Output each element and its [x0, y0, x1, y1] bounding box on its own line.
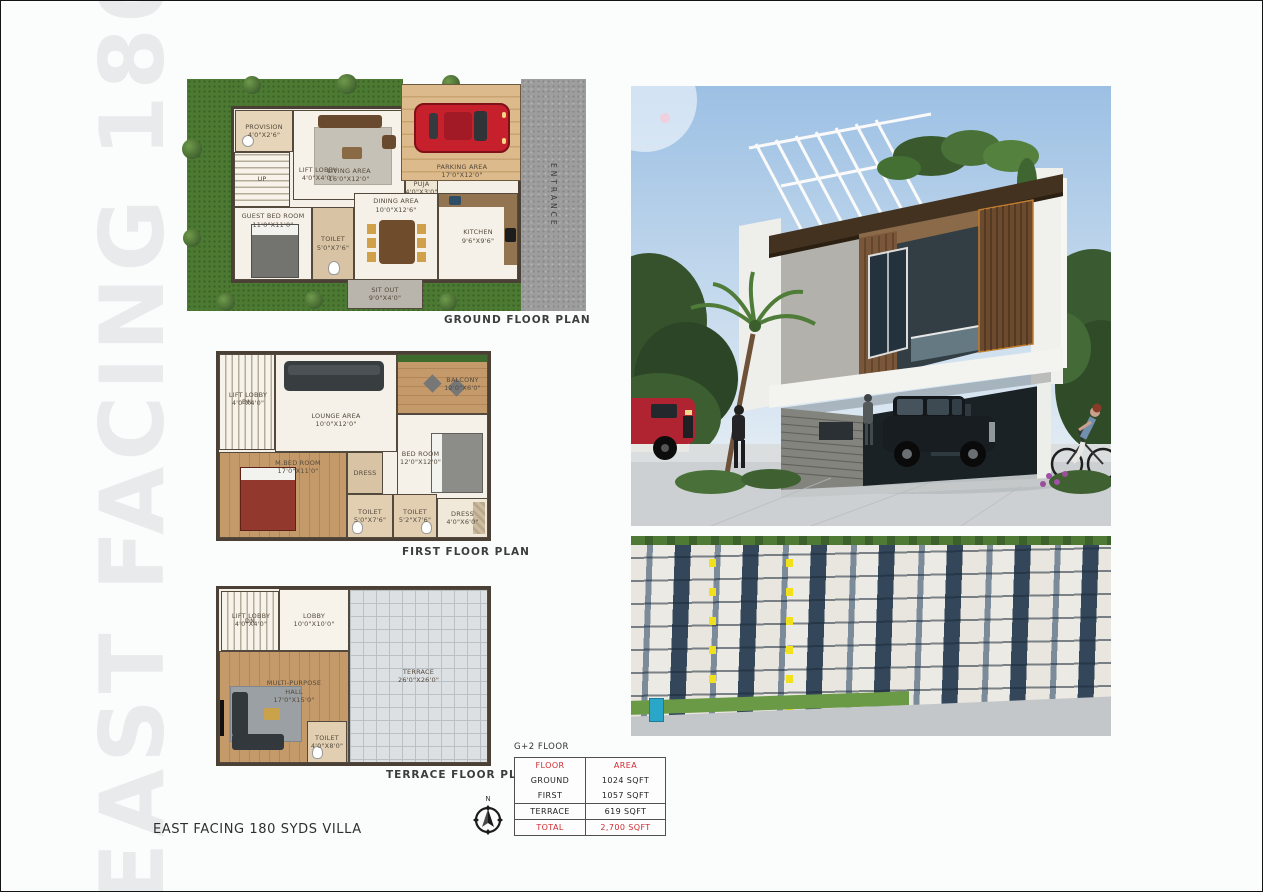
room-kitchen: KITCHEN 9'6"x9'6"	[438, 193, 518, 280]
room-label-toilet2: TOILET 5'2"x7'6"	[399, 508, 431, 525]
room-label-lift-lobby: LIFT LOBBY 4'0"x4'0"	[299, 166, 337, 183]
cell-floor: GROUND	[515, 776, 585, 785]
compass-icon: N	[469, 793, 507, 837]
chair-shape	[417, 224, 426, 234]
page-title: EAST FACING 180 SYDS VILLA	[153, 822, 362, 837]
chair-shape	[423, 374, 441, 392]
room-toilet-terrace: TOILET 4'0"x8'0"	[307, 721, 347, 763]
cell-floor: FIRST	[515, 791, 585, 800]
parking-area: PARKING AREA 17'0"x12'0"	[401, 84, 521, 181]
table-row: GROUND 1024 SQFT	[515, 773, 665, 788]
cell-area: 619 SQFT	[585, 804, 665, 819]
aerial-green-strip	[631, 536, 1111, 545]
room-dining: DINING AREA 10'0"x12'6"	[354, 193, 438, 280]
room-label-lift-lobby-first: LIFT LOBBY 4'0"x4'0"	[229, 391, 267, 408]
tv-shape	[220, 700, 224, 736]
room-label-dress2: DRESS 4'0"x6'0"	[446, 510, 478, 527]
room-toilet-ground: TOILET 5'0"x7'6"	[312, 207, 354, 280]
car-icon	[414, 103, 510, 153]
room-lounge: LOUNGE AREA 10'0"x12'0"	[275, 354, 397, 452]
tree-icon	[439, 293, 457, 311]
area-table: FLOOR AREA GROUND 1024 SQFT FIRST 1057 S…	[514, 757, 666, 836]
table-total-row: TOTAL 2,700 SQFT	[515, 819, 665, 835]
entrance-label: ENTRANCE	[549, 163, 558, 228]
room-label-kitchen: KITCHEN 9'6"x9'6"	[462, 228, 494, 245]
tree-icon	[305, 291, 323, 309]
room-bed: BED ROOM 12'0"x12'0"	[397, 414, 488, 502]
room-label-parking: PARKING AREA 17'0"x12'0"	[437, 163, 488, 180]
terrace-floor-plan: DN LIFT LOBBY 4'0"x4'0" LOBBY 10'0"x10'0…	[216, 586, 491, 766]
cell-area: 1024 SQFT	[585, 773, 665, 788]
table-header-row: FLOOR AREA	[515, 758, 665, 773]
first-plan-caption: FIRST FLOOR PLAN	[402, 546, 530, 558]
bed-shape	[240, 467, 296, 531]
aerial-villas-illustration	[631, 536, 1111, 736]
room-toilet2: TOILET 5'2"x7'6"	[393, 494, 437, 538]
table-title: G+2 FLOOR	[514, 742, 569, 752]
bed-shape	[251, 224, 299, 278]
room-lobby: LOBBY 10'0"x10'0"	[279, 589, 349, 651]
room-mbed: M.BED ROOM 17'0"x11'0"	[219, 452, 347, 538]
staircase: UP	[234, 152, 290, 207]
tree-icon	[183, 229, 201, 247]
room-label-hall: MULTI-PURPOSE HALL 17'0"x15'0"	[267, 679, 321, 704]
room-label-lobby: LOBBY 10'0"x10'0"	[293, 612, 334, 629]
tree-icon	[182, 139, 202, 159]
room-toilet1: TOILET 5'0"x7'6"	[347, 494, 393, 538]
chair-shape	[417, 238, 426, 248]
sofa-shape	[232, 734, 284, 750]
aerial-pool	[649, 698, 664, 722]
room-label-lounge: LOUNGE AREA 10'0"x12'0"	[311, 412, 360, 429]
room-label-toilet1: TOILET 5'0"x7'6"	[354, 508, 386, 525]
col-header-floor: FLOOR	[515, 761, 585, 770]
wc-shape	[328, 261, 340, 275]
cell-total-label: TOTAL	[515, 823, 585, 832]
room-label-bed: BED ROOM 12'0"x12'0"	[400, 450, 441, 467]
room-dress2: DRESS 4'0"x6'0"	[437, 498, 488, 538]
room-label-terrace: TERRACE 26'0"x26'0"	[398, 668, 439, 685]
dining-table-shape	[379, 220, 415, 264]
aerial-yellow-cars	[709, 544, 716, 712]
room-label-dress: DRESS	[354, 469, 377, 477]
sofa-shape	[232, 692, 248, 736]
room-label-mbed: M.BED ROOM 17'0"x11'0"	[275, 459, 321, 476]
room-label-dining: DINING AREA 10'0"x12'6"	[373, 197, 418, 214]
tree-icon	[217, 293, 235, 311]
chair-shape	[367, 224, 376, 234]
chair-shape	[367, 252, 376, 262]
compass-north-label: N	[485, 795, 490, 803]
tree-icon	[243, 76, 261, 94]
room-label-balcony: BALCONY 12'0"x6'0"	[444, 376, 481, 393]
room-sitout: SIT OUT 9'0"x4'0"	[347, 279, 423, 309]
stove-shape	[505, 228, 516, 242]
villa-render-illustration	[631, 86, 1111, 526]
ground-floor-plan: ENTRANCE PARKING AREA 17'0"x12'0" PROVIS…	[187, 79, 586, 311]
watermark-text: EAST FACING 180 SYDS	[85, 0, 181, 892]
room-label-provision: PROVISION 4'0"x2'6"	[245, 123, 283, 140]
room-label-puja: PUJA 4'0"x3'0"	[405, 180, 437, 197]
brochure-page: EAST FACING 180 SYDS ENTRANCE PARKING AR…	[0, 0, 1263, 892]
table-row: TERRACE 619 SQFT	[515, 803, 665, 819]
sofa-shape	[318, 115, 382, 128]
ground-plan-caption: GROUND FLOOR PLAN	[444, 314, 591, 326]
col-header-area: AREA	[585, 758, 665, 773]
cell-total-area: 2,700 SQFT	[585, 820, 665, 835]
hedge-shape	[398, 355, 488, 362]
first-floor-plan: DN LIFT LOBBY 4'0"x4'0" LOUNGE AREA 10'0…	[216, 351, 491, 541]
room-balcony: BALCONY 12'0"x6'0"	[397, 354, 488, 414]
room-label-sitout: SIT OUT 9'0"x4'0"	[369, 286, 401, 303]
aerial-yellow-cars	[786, 544, 793, 712]
coffee-table-shape	[264, 708, 280, 720]
chair-shape	[417, 252, 426, 262]
table-row: FIRST 1057 SQFT	[515, 788, 665, 803]
room-terrace: TERRACE 26'0"x26'0"	[349, 589, 488, 763]
room-dress: DRESS	[347, 452, 383, 494]
room-provision: PROVISION 4'0"x2'6"	[235, 110, 293, 152]
sink-shape	[449, 196, 461, 205]
room-label-toilet-ground: TOILET 5'0"x7'6"	[317, 235, 349, 252]
stairs-up-label: UP	[257, 175, 266, 183]
coffee-table-shape	[342, 147, 362, 159]
sofa-shape	[284, 361, 384, 391]
tree-icon	[337, 74, 357, 94]
room-label-toilet-terrace: TOILET 4'0"x8'0"	[311, 734, 343, 751]
entrance-road: ENTRANCE	[521, 79, 586, 311]
armchair-shape	[382, 135, 396, 149]
room-label-lift-lobby-terrace: LIFT LOBBY 4'0"x4'0"	[232, 612, 270, 629]
room-guest-bed: GUEST BED ROOM 11'0"x11'0"	[234, 207, 312, 280]
garden-strip-left	[187, 79, 231, 311]
chair-shape	[367, 238, 376, 248]
cell-floor: TERRACE	[515, 807, 585, 816]
room-label-guest-bed: GUEST BED ROOM 11'0"x11'0"	[242, 212, 305, 229]
cell-area: 1057 SQFT	[585, 788, 665, 803]
